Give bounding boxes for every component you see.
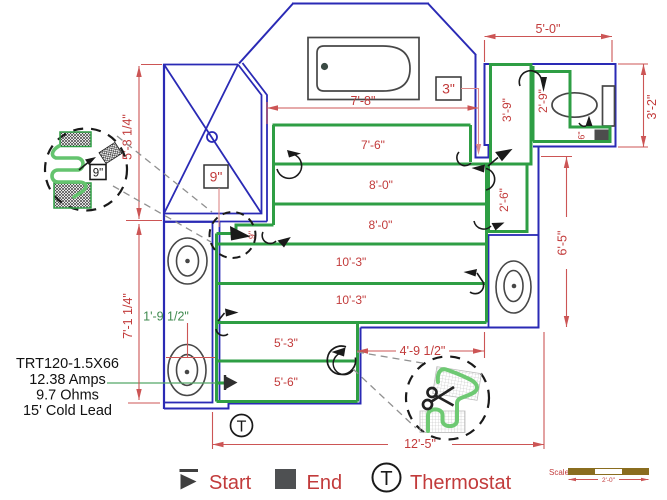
- svg-text:7'-1 1/4": 7'-1 1/4": [121, 293, 135, 339]
- svg-text:3'-2": 3'-2": [645, 95, 659, 120]
- svg-text:10'-3": 10'-3": [336, 255, 367, 269]
- svg-text:6'-5": 6'-5": [556, 231, 570, 256]
- svg-text:7'-8": 7'-8": [351, 94, 376, 108]
- svg-text:5'-3": 5'-3": [274, 336, 298, 350]
- svg-text:2'-9": 2'-9": [536, 89, 550, 113]
- svg-text:15' Cold Lead: 15' Cold Lead: [23, 403, 112, 419]
- svg-text:Start: Start: [209, 472, 252, 494]
- svg-text:12.38 Amps: 12.38 Amps: [29, 372, 106, 388]
- svg-text:TRT120-1.5X66: TRT120-1.5X66: [16, 356, 119, 372]
- svg-text:T: T: [380, 468, 392, 490]
- svg-text:2'-0": 2'-0": [602, 477, 616, 484]
- svg-text:Scale: Scale: [549, 468, 570, 477]
- svg-text:9.7 Ohms: 9.7 Ohms: [36, 388, 99, 404]
- svg-text:T: T: [237, 419, 247, 436]
- svg-text:Thermostat: Thermostat: [410, 472, 512, 494]
- svg-text:8'-0": 8'-0": [369, 218, 393, 232]
- svg-text:7'-6": 7'-6": [361, 138, 385, 152]
- svg-text:8'-0": 8'-0": [369, 178, 393, 192]
- svg-text:End: End: [307, 472, 343, 494]
- svg-text:1'-9 1/2": 1'-9 1/2": [143, 310, 189, 324]
- svg-text:6": 6": [577, 131, 587, 139]
- svg-text:12'-5": 12'-5": [404, 437, 436, 451]
- svg-text:2'-6": 2'-6": [497, 188, 511, 212]
- svg-text:3'-9": 3'-9": [500, 98, 514, 122]
- svg-text:10'-3": 10'-3": [336, 293, 367, 307]
- svg-text:5'-0": 5'-0": [536, 22, 561, 36]
- svg-text:4'-9 1/2": 4'-9 1/2": [400, 344, 446, 358]
- svg-text:9": 9": [93, 168, 103, 180]
- svg-text:9": 9": [210, 169, 223, 185]
- svg-text:3": 3": [442, 81, 455, 97]
- svg-text:5'-6": 5'-6": [274, 375, 298, 389]
